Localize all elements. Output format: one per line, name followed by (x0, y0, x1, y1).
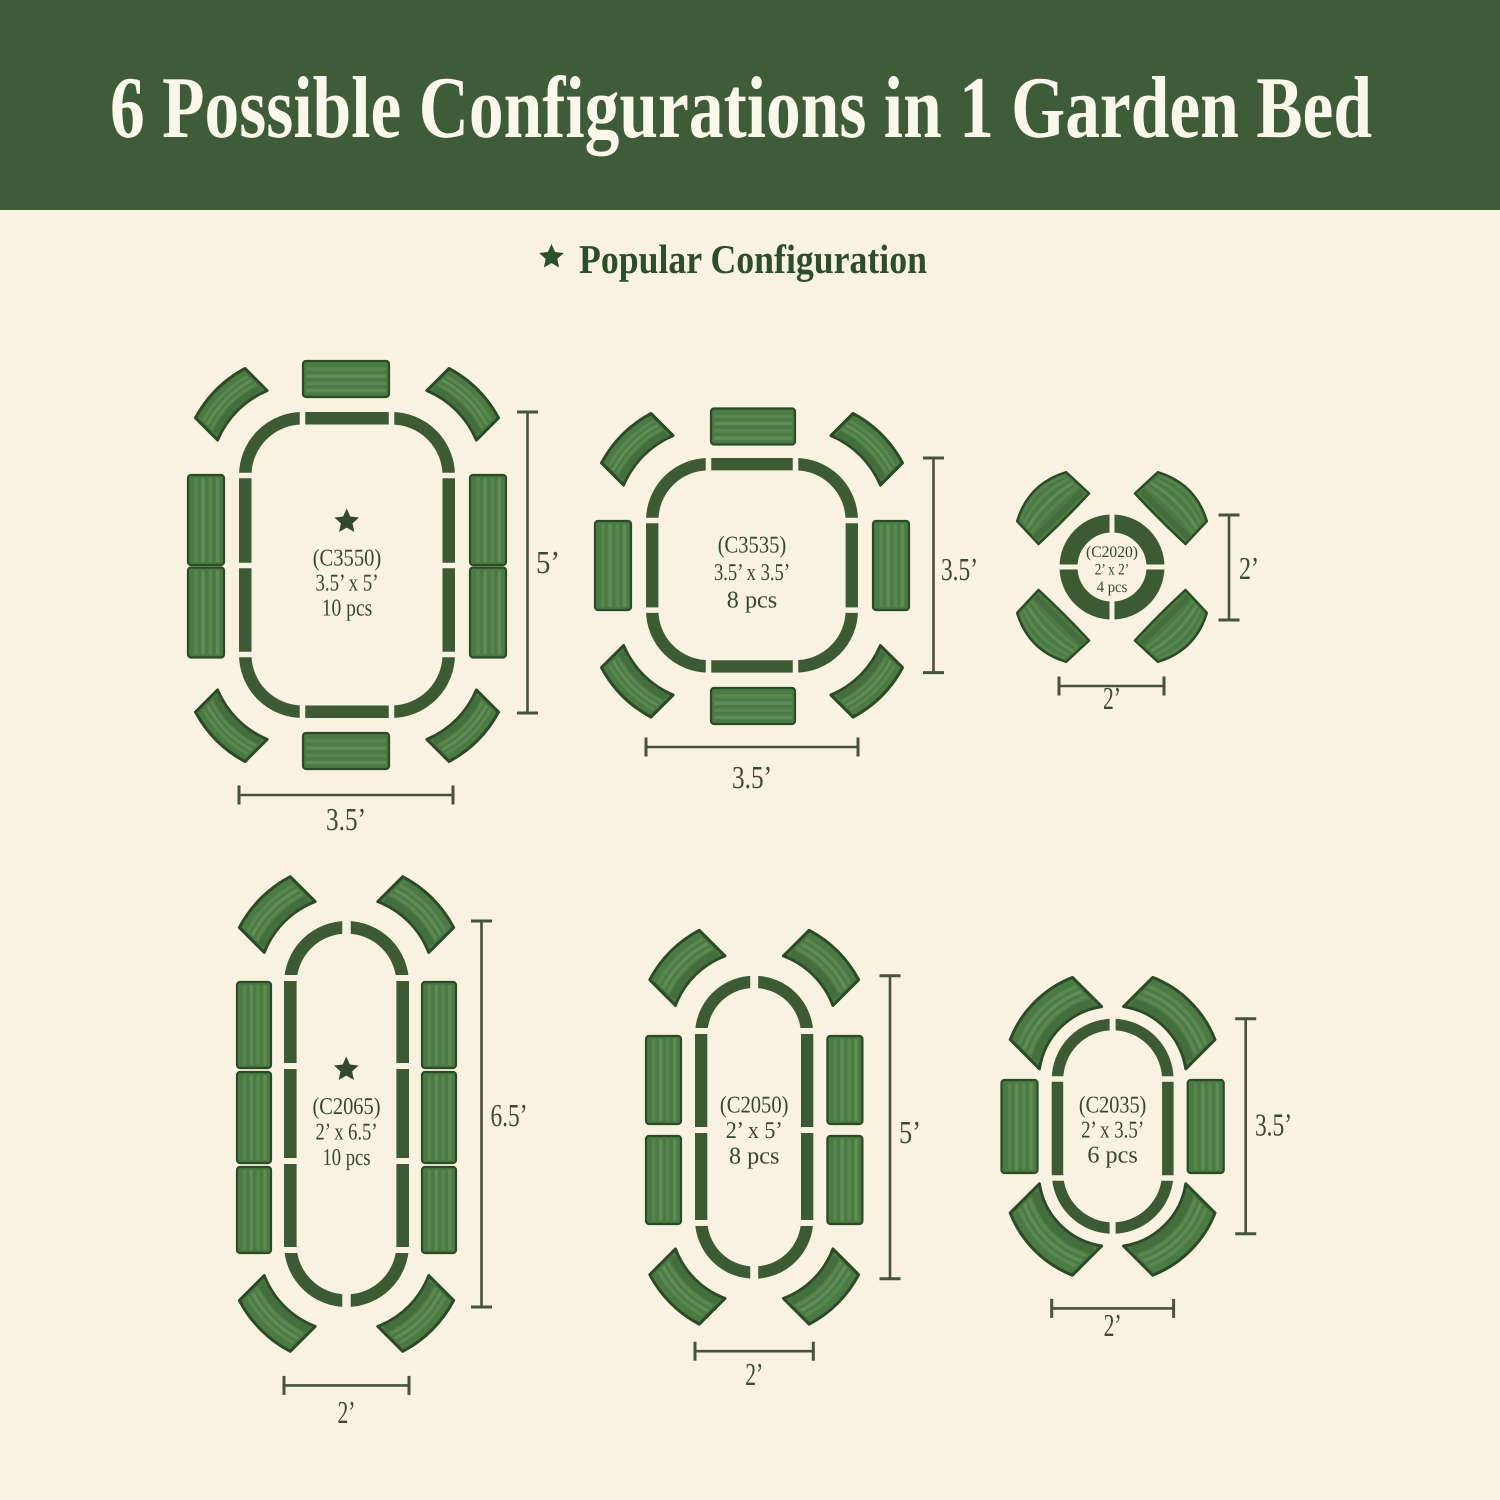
svg-text:6 Possible Configurations in 1: 6 Possible Configurations in 1 Garden Be… (110, 60, 1372, 157)
svg-text:2’: 2’ (338, 1394, 356, 1430)
svg-text:2’ x 2’: 2’ x 2’ (1095, 562, 1129, 579)
svg-text:2’: 2’ (1104, 1307, 1122, 1343)
svg-text:4 pcs: 4 pcs (1097, 579, 1128, 596)
svg-text:2’: 2’ (745, 1356, 763, 1392)
svg-text:5’: 5’ (899, 1114, 921, 1150)
svg-text:3.5’: 3.5’ (326, 801, 366, 837)
svg-text:10 pcs: 10 pcs (323, 1145, 371, 1171)
svg-text:2’ x 3.5’: 2’ x 3.5’ (1081, 1118, 1144, 1144)
svg-text:(C2020): (C2020) (1086, 544, 1138, 561)
svg-text:10 pcs: 10 pcs (322, 596, 372, 622)
svg-text:3.5’: 3.5’ (941, 551, 978, 587)
svg-text:(C2050): (C2050) (720, 1093, 789, 1119)
svg-text:3.5’ x 3.5’: 3.5’ x 3.5’ (714, 560, 790, 586)
svg-text:(C3535): (C3535) (718, 533, 787, 559)
svg-text:(C3550): (C3550) (313, 546, 382, 572)
svg-text:2’ x 5’: 2’ x 5’ (726, 1118, 783, 1144)
svg-text:3.5’ x 5’: 3.5’ x 5’ (316, 571, 379, 597)
svg-text:3.5’: 3.5’ (1255, 1107, 1292, 1143)
svg-text:(C2035): (C2035) (1079, 1093, 1146, 1119)
svg-text:2’: 2’ (1103, 680, 1121, 716)
svg-text:8 pcs: 8 pcs (727, 588, 777, 614)
svg-text:(C2065): (C2065) (312, 1094, 380, 1120)
svg-text:8 pcs: 8 pcs (729, 1144, 779, 1170)
svg-text:2’ x 6.5’: 2’ x 6.5’ (316, 1120, 378, 1146)
svg-text:Popular Configuration: Popular Configuration (579, 236, 927, 283)
svg-text:6 pcs: 6 pcs (1087, 1143, 1137, 1169)
svg-text:3.5’: 3.5’ (732, 759, 772, 795)
svg-text:2’: 2’ (1239, 550, 1259, 586)
svg-text:6.5’: 6.5’ (491, 1097, 528, 1133)
svg-text:5’: 5’ (536, 544, 560, 580)
